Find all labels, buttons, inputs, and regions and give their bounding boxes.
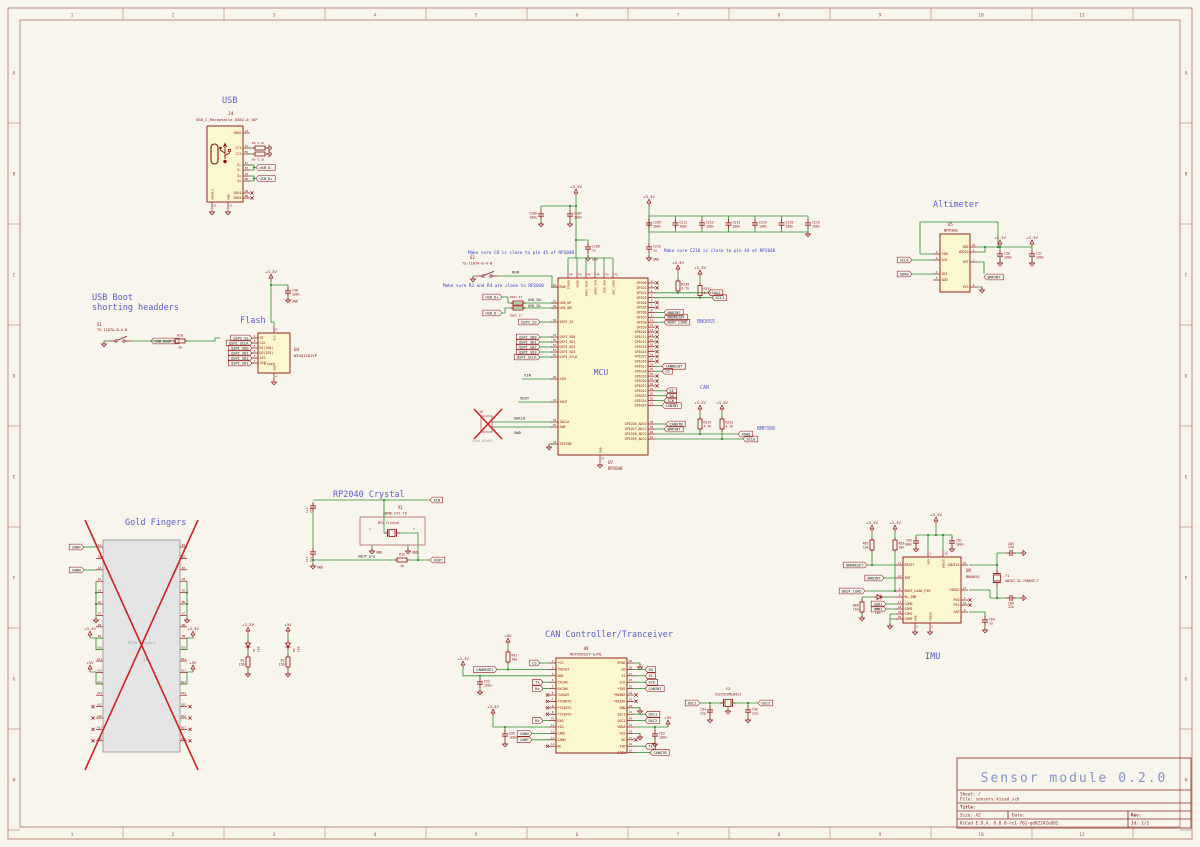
gnd-symbol[interactable]: [101, 342, 106, 347]
capacitor[interactable]: C215100n: [779, 219, 794, 229]
power-flag[interactable]: +3.3V: [672, 260, 684, 272]
global-net-label[interactable]: CANINT: [645, 686, 664, 692]
resistor[interactable]: [173, 339, 188, 343]
no-connect-icon[interactable]: [655, 306, 658, 309]
capacitor[interactable]: C206100n: [529, 210, 544, 220]
gnd-symbol[interactable]: [470, 277, 475, 282]
gnd-symbol[interactable]: [502, 742, 507, 747]
global-net-label[interactable]: BMPINT: [664, 426, 683, 432]
global-net-label[interactable]: QSPI_SCLK: [514, 354, 540, 360]
junction[interactable]: [984, 246, 986, 248]
bl-ind-led[interactable]: [874, 595, 884, 600]
no-connect-icon[interactable]: [655, 330, 658, 333]
capacitor[interactable]: C2101u: [646, 243, 661, 253]
junction[interactable]: [186, 592, 188, 594]
text-label[interactable]: R10: [177, 334, 183, 338]
text-label[interactable]: 1k: [178, 346, 182, 350]
global-net-label[interactable]: SI: [645, 673, 655, 679]
section-title-usb[interactable]: USB: [222, 96, 237, 106]
junction[interactable]: [935, 534, 937, 536]
capacitor[interactable]: C81100n: [949, 537, 964, 547]
power-flag[interactable]: +5V: [284, 622, 292, 634]
no-connect-icon[interactable]: [634, 700, 637, 703]
global-net-label[interactable]: BNORESET: [843, 562, 867, 568]
svg-text:R201 27: R201 27: [510, 295, 522, 299]
section-title-crystal[interactable]: RP2040 Crystal: [333, 490, 405, 500]
gnd-symbol[interactable]: [982, 628, 987, 633]
resistor[interactable]: R9110k: [506, 650, 517, 665]
text-label[interactable]: 1: [369, 527, 371, 531]
global-net-label[interactable]: OSC1: [685, 700, 700, 706]
power-flag[interactable]: +3.3V: [1026, 235, 1038, 247]
pin-group[interactable]: A6D+B6D+: [238, 172, 250, 183]
gnd-symbol[interactable]: [184, 618, 189, 623]
text-label[interactable]: S1: [97, 322, 102, 327]
capacitor[interactable]: C93100n: [652, 730, 667, 740]
gnd-symbol[interactable]: [209, 210, 214, 215]
no-connect-icon[interactable]: [655, 335, 658, 338]
gnd-symbol[interactable]: [1021, 595, 1026, 600]
pin-group[interactable]: 2GPIO03GPIO14GPIO25GPIO36GPIO47GPIO58GPI…: [635, 279, 655, 408]
capacitor[interactable]: C2081u: [585, 243, 600, 253]
no-connect-icon[interactable]: [546, 706, 549, 709]
global-net-label[interactable]: QSPI_SD3: [228, 360, 252, 366]
global-net-label[interactable]: CANN: [69, 567, 84, 573]
text-label[interactable]: BNO055: [966, 574, 980, 579]
capacitor[interactable]: C211100n: [673, 219, 688, 229]
section-title-imu[interactable]: IMU: [925, 652, 940, 662]
text-label[interactable]: U9: [584, 646, 589, 651]
no-connect-icon[interactable]: [188, 728, 191, 731]
global-net-label[interactable]: CANN: [517, 731, 532, 737]
text-label[interactable]: BMP388: [757, 426, 775, 432]
resistor[interactable]: R8310k: [893, 538, 904, 553]
gnd-symbol[interactable]: GND: [585, 256, 597, 262]
no-connect-icon[interactable]: [968, 603, 971, 606]
global-net-label[interactable]: OSC2: [645, 718, 660, 724]
power-flag[interactable]: +3.3V: [187, 626, 199, 638]
capacitor[interactable]: C8522p: [1006, 542, 1016, 556]
svg-text:CANSTB: CANSTB: [654, 751, 667, 755]
global-net-label[interactable]: BNOINT: [865, 575, 884, 581]
global-net-label[interactable]: CANSTB: [650, 750, 669, 756]
no-connect-icon[interactable]: [655, 340, 658, 343]
power-flag[interactable]: +3.3V: [994, 235, 1006, 247]
text-label[interactable]: RUN: [512, 270, 520, 275]
no-connect-icon[interactable]: [250, 191, 253, 194]
power-flag[interactable]: +5V: [504, 633, 512, 645]
global-net-label[interactable]: QSPI_SS: [519, 319, 540, 325]
text-label[interactable]: LED: [257, 646, 261, 652]
text-label[interactable]: 1k: [400, 564, 404, 568]
power-flag[interactable]: +3.3V: [265, 269, 277, 281]
no-connect-icon[interactable]: [91, 716, 94, 719]
text-label[interactable]: ABM8-272-T3: [383, 512, 407, 516]
power-flag[interactable]: +3.3V: [694, 400, 706, 412]
text-label[interactable]: SWCLK: [514, 416, 526, 421]
resistor[interactable]: R2304.7k: [676, 279, 689, 294]
gnd-symbol[interactable]: [477, 690, 482, 695]
text-label[interactable]: Flash: [264, 362, 275, 366]
wire[interactable]: [576, 240, 588, 243]
wire[interactable]: [186, 338, 220, 341]
note-c210[interactable]: Make sure C210 is close to pin 44 of RP2…: [664, 248, 776, 254]
gnd-symbol[interactable]: [1029, 261, 1034, 266]
gnd-symbol[interactable]: [245, 672, 250, 677]
global-net-label[interactable]: USB_D-: [256, 165, 275, 171]
svg-text:4.7k: 4.7k: [704, 291, 712, 295]
gnd-symbol[interactable]: [285, 672, 290, 677]
resistor[interactable]: R8710k: [863, 538, 874, 553]
gnd-symbol[interactable]: [271, 380, 276, 385]
capacitor[interactable]: C51100n: [1029, 250, 1044, 260]
gnd-symbol[interactable]: [979, 288, 984, 293]
no-connect-icon[interactable]: [91, 705, 94, 708]
junction[interactable]: [927, 534, 929, 536]
power-flag[interactable]: +3.3V: [930, 512, 942, 524]
text-label[interactable]: 3: [413, 527, 415, 531]
resistor[interactable]: [395, 558, 410, 562]
gnd-symbol[interactable]: [546, 445, 551, 450]
gnd-symbol[interactable]: [927, 630, 932, 635]
gnd-symbol[interactable]: [997, 261, 1002, 266]
note-c8[interactable]: Make sure C8 is close to pin 45 of RP204…: [468, 250, 574, 256]
global-net-label[interactable]: CANP: [517, 737, 532, 743]
global-net-label[interactable]: XIN: [430, 497, 443, 503]
text-label[interactable]: CAN: [700, 385, 709, 391]
svg-text:26: 26: [553, 283, 557, 287]
capacitor[interactable]: C213100n: [726, 219, 741, 229]
wire[interactable]: [969, 590, 997, 598]
text-label[interactable]: R12: [399, 553, 405, 557]
wire[interactable]: [977, 247, 985, 252]
no-connect-icon[interactable]: [634, 693, 637, 696]
svg-text:USB_IO+: USB_IO+: [528, 298, 542, 302]
junction[interactable]: [942, 534, 944, 536]
power-flag[interactable]: +3.3V: [866, 520, 878, 532]
text-label[interactable]: SWD: [514, 430, 522, 435]
no-connect-icon[interactable]: [634, 738, 637, 741]
no-connect-icon[interactable]: [655, 286, 658, 289]
capacitor[interactable]: C9622p: [745, 706, 758, 716]
gnd-symbol[interactable]: [707, 718, 712, 723]
capacitor[interactable]: C50100n: [997, 250, 1012, 260]
no-connect-icon[interactable]: [655, 301, 658, 304]
capacitor[interactable]: C9422p: [700, 706, 713, 716]
wire[interactable]: [502, 308, 558, 313]
text-label[interactable]: LED: [875, 611, 881, 615]
resistor[interactable]: R2294.7k: [698, 417, 711, 432]
global-net-label[interactable]: CANP: [69, 544, 84, 550]
svg-text:+3.3V: +3.3V: [84, 626, 96, 631]
gnd-symbol[interactable]: [859, 616, 864, 621]
gnd-symbol[interactable]: [267, 151, 272, 156]
svg-text:RUN: RUN: [560, 285, 566, 289]
pin-group[interactable]: A1A2A3A4A5A6A7A8A9A10A11A12A13A14A15A16A…: [96, 543, 103, 741]
capacitor[interactable]: C214100n: [752, 219, 767, 229]
gnd-symbol[interactable]: GND: [646, 256, 658, 262]
text-label[interactable]: D2: [292, 648, 296, 652]
text-label[interactable]: TS-1187A-B-A-B: [97, 328, 127, 332]
capacitor[interactable]: C209100n: [646, 219, 661, 229]
gnd-symbol[interactable]: GND: [310, 564, 322, 570]
resistor[interactable]: [253, 146, 268, 150]
text-label[interactable]: XOUT: [520, 396, 530, 401]
wire[interactable]: [634, 733, 640, 737]
capacitor[interactable]: C207100n: [567, 210, 582, 220]
gnd-symbol[interactable]: [913, 547, 918, 552]
power-led-3v3[interactable]: [246, 640, 251, 650]
usb-boot-switch[interactable]: [109, 336, 131, 342]
capacitor[interactable]: [310, 548, 316, 558]
svg-text:BOOT_LOAD: BOOT_LOAD: [842, 589, 861, 593]
svg-text:CLKOUT: CLKOUT: [558, 693, 570, 697]
no-connect-icon[interactable]: [655, 375, 658, 378]
no-connect-icon[interactable]: [546, 713, 549, 716]
pin-group[interactable]: 17COM018COM119COM220COM3: [896, 600, 912, 621]
run-switch[interactable]: [476, 271, 498, 277]
global-net-label[interactable]: SDA0: [897, 271, 912, 277]
text-label[interactable]: XIN: [524, 373, 532, 378]
pin-group[interactable]: 53QSPI_SD055QSPI_SD154QSPI_SD251QSPI_SD3…: [551, 333, 577, 359]
power-flag[interactable]: +3.3V: [889, 520, 901, 532]
note-r3r4[interactable]: Make sure R3 and R4 are close to RP2040: [443, 283, 544, 289]
text-label[interactable]: USB_C_Receptacle_USB2.0_16P: [196, 117, 258, 122]
resistor[interactable]: R88150: [853, 600, 864, 615]
text-label[interactable]: BMP388: [944, 228, 958, 233]
section-title-goldfingers[interactable]: Gold Fingers: [125, 518, 186, 528]
text-label[interactable]: TS-1187A-B-A-B: [462, 262, 492, 266]
capacitor[interactable]: C92100n: [477, 678, 492, 688]
pin-group[interactable]: A7D-B7D-: [238, 161, 250, 172]
text-label[interactable]: S2: [470, 255, 475, 260]
no-connect-icon[interactable]: [546, 700, 549, 703]
gnd-symbol[interactable]: [745, 718, 750, 723]
section-title-flash[interactable]: Flash: [240, 316, 266, 326]
svg-text:TXCAN: TXCAN: [558, 680, 568, 684]
text-label[interactable]: W25Q128JVP: [294, 353, 318, 358]
text-label[interactable]: X1: [398, 505, 403, 510]
svg-text:GPIO29_ADC3: GPIO29_ADC3: [625, 437, 647, 441]
global-net-label[interactable]: BMPINT: [984, 274, 1003, 280]
resistor[interactable]: R1150: [239, 655, 250, 670]
text-label[interactable]: R202 27: [510, 314, 522, 318]
global-net-label[interactable]: CANINT: [662, 403, 681, 409]
capacitor[interactable]: C212100n: [699, 219, 714, 229]
global-net-label[interactable]: Tx: [533, 679, 543, 685]
schematic-canvas[interactable]: USBUSB Bootshorting headdersFlashGold Fi…: [69, 96, 1044, 770]
text-label[interactable]: MCP25625T-E/ML: [570, 652, 603, 657]
text-label[interactable]: 27p: [309, 507, 313, 513]
text-label[interactable]: J5: [479, 410, 483, 414]
power-flag[interactable]: +3.3V: [694, 265, 706, 277]
pin-group[interactable]: 47USB_DP48USB_DM: [551, 299, 571, 310]
power-flag[interactable]: +3.3V: [716, 400, 728, 412]
text-label[interactable]: BNO055: [697, 319, 715, 325]
text-label[interactable]: Y1: [1005, 574, 1009, 578]
junction[interactable]: [95, 603, 97, 605]
no-connect-icon[interactable]: [188, 716, 191, 719]
power-flag[interactable]: +3.3V: [242, 622, 254, 634]
text-label[interactable]: R3 5.1k: [252, 158, 264, 162]
svg-text:GNDIO: GNDIO: [929, 612, 933, 621]
wire[interactable]: [977, 262, 984, 274]
text-label[interactable]: ABS07-32.768KHZ-T: [1005, 579, 1039, 583]
no-connect-icon[interactable]: [655, 281, 658, 284]
gnd-symbol[interactable]: GND: [285, 298, 297, 304]
capacitor[interactable]: C40100n: [285, 287, 300, 297]
power-flag[interactable]: +3.3V: [643, 194, 655, 206]
gnd-symbol[interactable]: GND: [405, 549, 417, 555]
resistor[interactable]: [253, 152, 268, 156]
global-net-label[interactable]: OSC1: [645, 711, 660, 717]
svg-text:A7: A7: [245, 161, 249, 165]
gnd-symbol[interactable]: [725, 709, 730, 714]
resistor[interactable]: R2324.7k: [720, 417, 733, 432]
text-label[interactable]: X322516MLB4SI: [715, 693, 742, 697]
text-label[interactable]: Y2: [726, 686, 731, 691]
power-flag[interactable]: +3.3V: [487, 704, 499, 716]
no-connect-icon[interactable]: [655, 384, 658, 387]
text-label[interactable]: U4: [294, 347, 300, 352]
text-label[interactable]: MCU: [594, 368, 609, 377]
power-flag[interactable]: +3.3V: [457, 656, 469, 668]
no-connect-icon[interactable]: [91, 739, 94, 742]
svg-text:*INT: *INT: [618, 687, 626, 691]
global-net-label[interactable]: BOOT_LOAD: [839, 588, 865, 594]
junction[interactable]: [997, 246, 999, 248]
dnp-cross-debug[interactable]: [474, 409, 502, 439]
text-label[interactable]: shorting headders: [92, 303, 179, 313]
svg-text:GND: GND: [599, 447, 603, 453]
svg-text:MCU: MCU: [594, 368, 609, 377]
global-net-label[interactable]: USB_D-: [483, 310, 502, 316]
imu-crystal[interactable]: [993, 570, 1001, 586]
gnd-symbol[interactable]: [637, 709, 642, 714]
wire[interactable]: [271, 281, 274, 326]
capacitor[interactable]: C216100n: [805, 219, 820, 229]
no-connect-icon[interactable]: [91, 728, 94, 731]
power-flag[interactable]: +3.3V: [570, 184, 582, 196]
gnd-symbol[interactable]: [949, 547, 954, 552]
no-connect-icon[interactable]: [655, 345, 658, 348]
pin-group[interactable]: B1B2B3B4B5B6B7B8B9B10B11B12B13B14B15B16B…: [180, 543, 187, 741]
svg-text:QSPI_SD2: QSPI_SD2: [560, 345, 576, 349]
capacitor[interactable]: C8622p: [1006, 595, 1016, 609]
power-flag[interactable]: +3.3V: [84, 626, 96, 638]
wire[interactable]: [634, 663, 640, 667]
gnd-symbol[interactable]: [887, 624, 892, 629]
global-net-label[interactable]: Rx: [533, 718, 543, 724]
section-title-can[interactable]: CAN Controller/Tranceiver: [545, 630, 673, 640]
text-label[interactable]: D1: [252, 648, 256, 652]
power-flag[interactable]: +5V: [189, 660, 197, 672]
wire[interactable]: [969, 612, 985, 617]
svg-text:D: D: [1185, 374, 1188, 380]
no-connect-icon[interactable]: [655, 379, 658, 382]
resistor[interactable]: R2150: [279, 655, 290, 670]
global-net-label[interactable]: CS: [530, 660, 540, 666]
gnd-symbol[interactable]: [597, 463, 602, 468]
no-connect-icon[interactable]: [655, 360, 658, 363]
gnd-symbol[interactable]: [1021, 550, 1026, 555]
text-label[interactable]: Conn_01x03: [472, 439, 492, 443]
text-label[interactable]: R4 5.1k: [252, 141, 264, 145]
text-label[interactable]: XOUT_pre: [358, 555, 375, 559]
global-net-label[interactable]: OSC2: [758, 700, 773, 706]
gnd-symbol[interactable]: [637, 735, 642, 740]
text-label[interactable]: U8: [966, 568, 971, 573]
no-connect-icon[interactable]: [655, 355, 658, 358]
file-name: File: sensors.kicad_sch: [960, 797, 1020, 803]
text-label[interactable]: USB_IO+: [528, 298, 542, 302]
text-label[interactable]: U7: [608, 460, 614, 465]
wire[interactable]: [634, 708, 640, 711]
gnd-symbol[interactable]: [652, 742, 657, 747]
global-net-label[interactable]: USB_D+: [483, 294, 502, 300]
gnd-symbol[interactable]: [267, 145, 272, 150]
no-connect-icon[interactable]: [968, 598, 971, 601]
text-label[interactable]: R201 27: [510, 295, 522, 299]
no-connect-icon[interactable]: [188, 705, 191, 708]
power-flag[interactable]: +5V: [664, 715, 672, 727]
capacitor[interactable]: C82100n: [904, 537, 919, 547]
global-net-label[interactable]: CANRESET: [473, 667, 497, 673]
wire[interactable]: [977, 287, 982, 290]
no-connect-icon[interactable]: [546, 693, 549, 696]
no-connect-icon[interactable]: [546, 745, 549, 748]
svg-text:19: 19: [553, 440, 557, 444]
text-label[interactable]: RP2040: [608, 466, 623, 471]
gnd-symbol[interactable]: [225, 210, 230, 215]
global-net-label[interactable]: BOOT_LOAD: [664, 319, 690, 325]
section-title-altimeter[interactable]: Altimeter: [933, 200, 979, 210]
section-title-usbboot[interactable]: USB Boot: [92, 293, 133, 303]
svg-text:+3.3V: +3.3V: [866, 520, 878, 525]
no-connect-icon[interactable]: [250, 196, 253, 199]
power-led-5v[interactable]: [286, 640, 291, 650]
svg-text:27: 27: [963, 586, 967, 590]
global-net-label[interactable]: SO: [645, 667, 655, 673]
power-flag[interactable]: +5V: [86, 660, 94, 672]
title-block[interactable]: Sensor module 0.2.0 Sheet: / File: senso…: [957, 758, 1191, 828]
junction[interactable]: [95, 592, 97, 594]
junction[interactable]: [186, 603, 188, 605]
can-crystal[interactable]: [720, 699, 736, 707]
mcu-crystal[interactable]: [384, 529, 400, 537]
global-net-label[interactable]: Rx: [533, 686, 543, 692]
text-label[interactable]: LED: [297, 646, 301, 652]
resistor[interactable]: R2314.7k: [698, 283, 711, 298]
pin-group[interactable]: 38GPIO26_ADC039GPIO27_ADC140GPIO28_ADC24…: [625, 420, 655, 441]
gnd-symbol[interactable]: [567, 222, 572, 227]
text-label[interactable]: MCU Crystal: [378, 521, 400, 525]
no-connect-icon[interactable]: [655, 326, 658, 329]
text-label[interactable]: USB_IO-: [528, 304, 542, 308]
global-net-label[interactable]: XOUT: [430, 557, 445, 563]
text-label[interactable]: U5: [948, 222, 953, 227]
no-connect-icon[interactable]: [188, 739, 191, 742]
global-net-label[interactable]: USB_D+: [256, 176, 275, 182]
global-net-label[interactable]: SCK: [645, 679, 658, 685]
wire[interactable]: [271, 285, 288, 288]
capacitor[interactable]: C841u: [982, 616, 995, 626]
gnd-symbol[interactable]: [538, 222, 543, 227]
capacitor[interactable]: C90100n: [502, 730, 517, 740]
global-net-label[interactable]: SCL0: [897, 257, 912, 263]
gnd-symbol[interactable]: [912, 630, 917, 635]
no-connect-icon[interactable]: [655, 350, 658, 353]
